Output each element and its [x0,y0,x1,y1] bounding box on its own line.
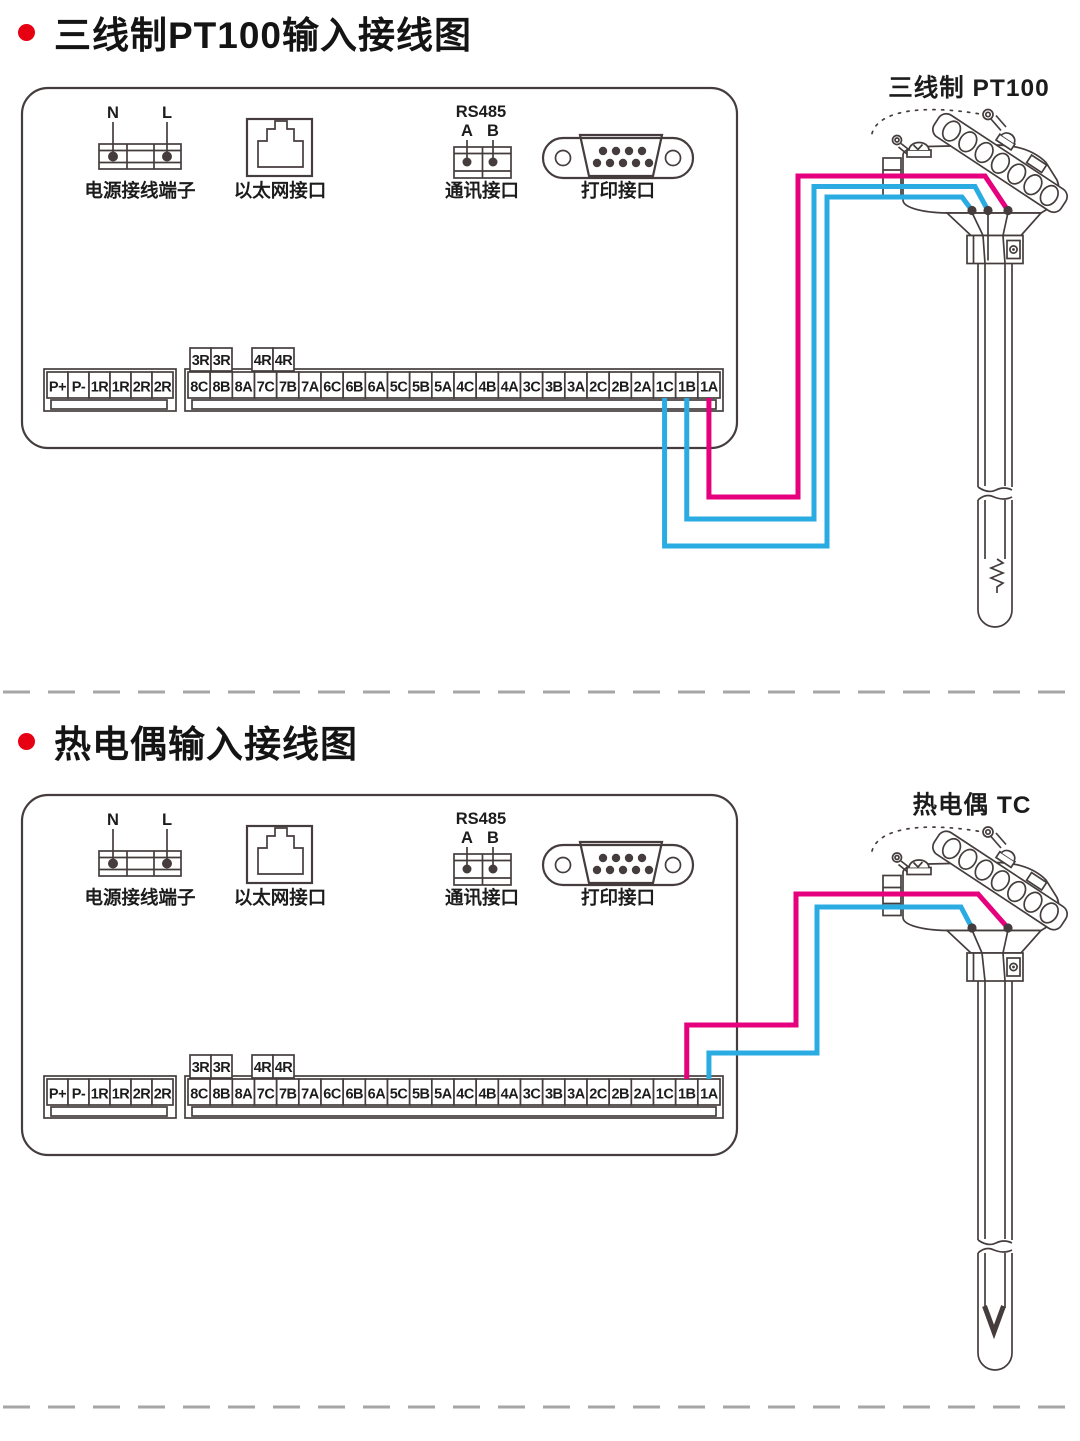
wiring-diagram-canvas: N L 电源接线端子 以太网接口 RS485 A [0,0,1080,1441]
pt100-rear-panel [22,88,737,448]
pt100-sensor-terminals [967,206,1012,215]
head-terminal-dot [967,923,976,932]
rtd-element-icon [991,559,1003,593]
pt100-wiring [665,176,1008,546]
sensor-wire-1B [687,187,988,520]
lid-eyelet-icon [983,110,993,120]
chain-eyelet-icon [893,853,902,862]
stem-break [978,1240,1012,1244]
sensor-label-pt100: 三线制 PT100 [888,73,1050,102]
probe-tip-tube [978,500,1012,627]
head-terminal-dot [1003,923,1012,932]
stem-break [978,487,1012,491]
sensor-wire-1A [709,907,972,1079]
chain-eyelet-icon [893,136,902,145]
head-terminal-dot [983,206,992,215]
tc-rear-panel [22,795,737,1155]
head-terminal-dot [1003,206,1012,215]
head-terminal-dot [967,206,976,215]
neck-funnel [947,931,1041,954]
lid-eyelet-icon [983,827,993,837]
sensor-label-tc: 热电偶 TC [913,791,1032,819]
thermocouple-junction-icon [985,1306,1004,1332]
tc-sensor-drawing [872,814,1080,1370]
probe-tip-tube [978,1253,1012,1370]
neck-funnel [947,213,1041,236]
